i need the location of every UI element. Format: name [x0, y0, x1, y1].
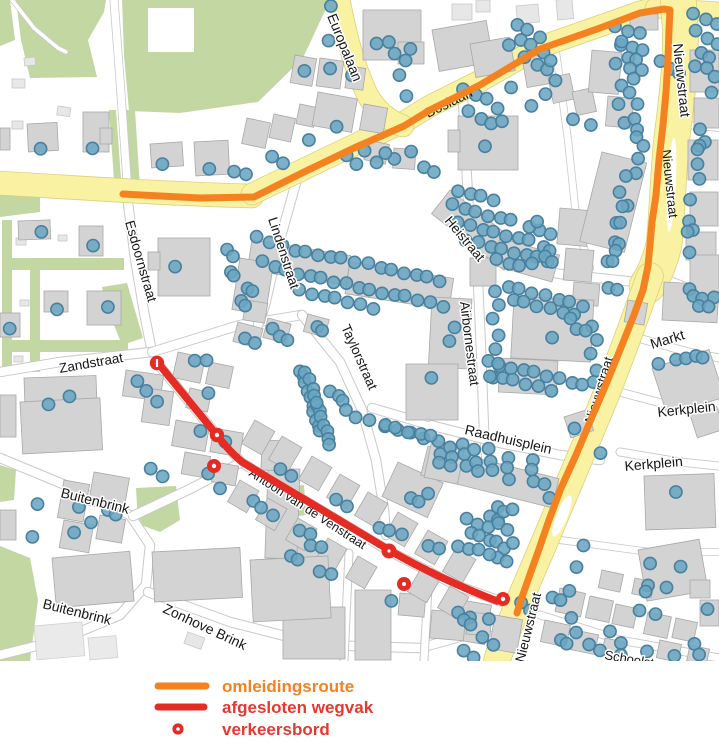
- svg-text:verkeersbord: verkeersbord: [222, 720, 330, 739]
- svg-text:afgesloten wegvak: afgesloten wegvak: [222, 698, 374, 717]
- svg-text:omleidingsroute: omleidingsroute: [222, 677, 354, 696]
